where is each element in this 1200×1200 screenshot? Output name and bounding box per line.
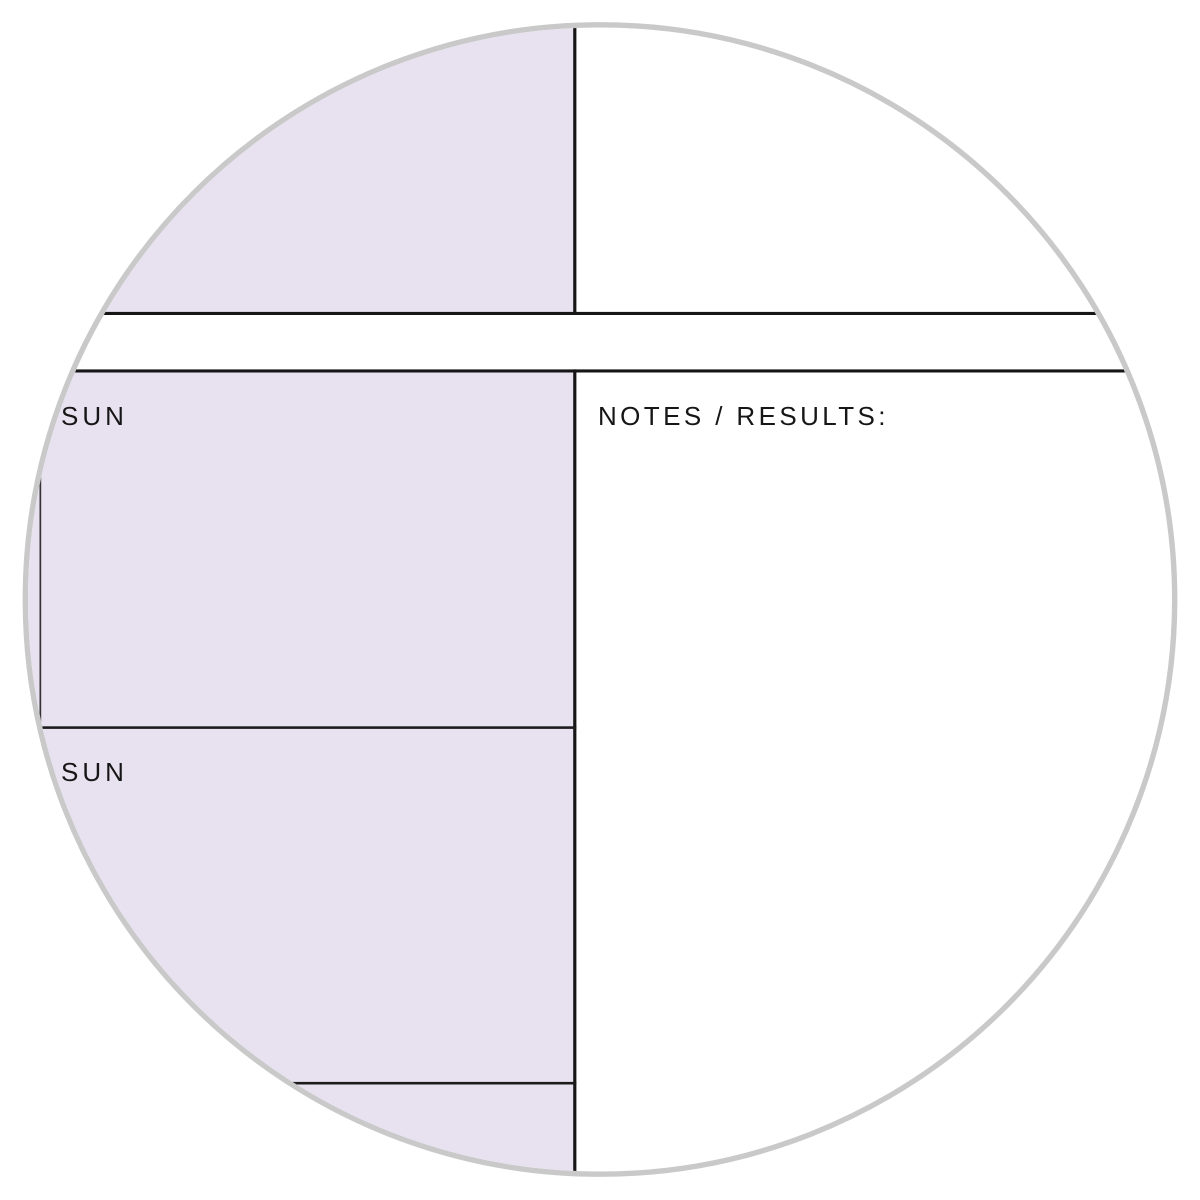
svg-text:SUN: SUN — [61, 757, 128, 787]
svg-text:SUN: SUN — [61, 401, 128, 431]
svg-text:NOTES / RESULTS:: NOTES / RESULTS: — [598, 401, 889, 431]
